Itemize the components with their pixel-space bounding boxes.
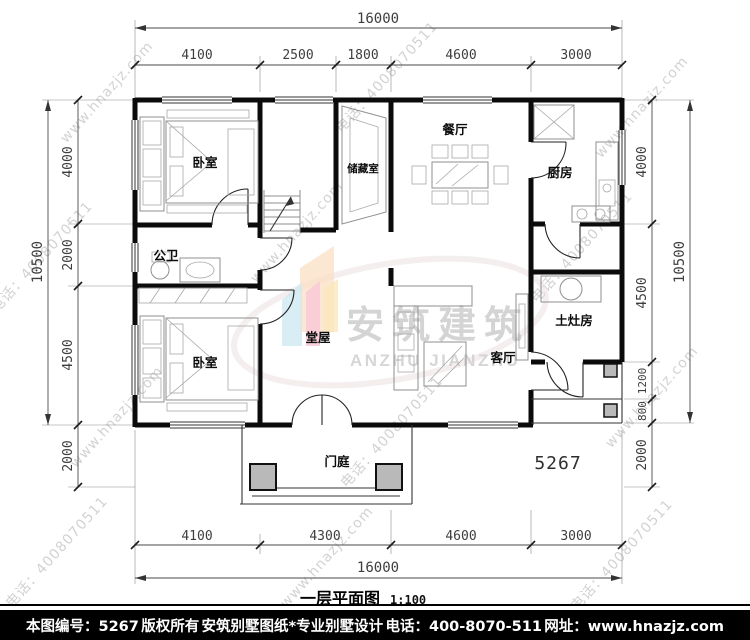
dim-left-seg: 2000 bbox=[61, 440, 76, 471]
dim-bottom-seg: 4600 bbox=[445, 529, 476, 544]
dim-bottom-seg: 4300 bbox=[309, 529, 340, 544]
porch-post bbox=[604, 404, 617, 417]
dim-bottom-seg: 3000 bbox=[560, 529, 591, 544]
footer-bar: 本图编号：5267 版权所有 安筑别墅图纸*专业别墅设计 电话：400-8070… bbox=[0, 610, 750, 640]
room-label-bedroom-bottom: 卧室 bbox=[192, 355, 218, 370]
footer-copyright: 版权所有 bbox=[141, 615, 199, 636]
furniture-dining bbox=[412, 145, 508, 204]
dim-right: 4000 4500 1200 800 2000 10500 bbox=[624, 96, 694, 491]
dim-top-seg: 4600 bbox=[445, 48, 476, 63]
footer-company: 安筑别墅图纸*专业别墅设计 bbox=[202, 615, 384, 636]
entry-door-leaf bbox=[292, 395, 322, 425]
entry-door-leaf bbox=[322, 395, 352, 425]
dim-left-total: 10500 bbox=[30, 241, 46, 283]
logo-house-yellow bbox=[324, 279, 338, 332]
porch-column bbox=[376, 464, 402, 490]
room-label-stove: 土灶房 bbox=[555, 313, 593, 328]
room-label-dining: 餐厅 bbox=[441, 122, 468, 137]
caption-title: 一层平面图 bbox=[300, 585, 380, 613]
room-label-kitchen: 厨房 bbox=[547, 165, 572, 180]
watermark-text: 电话：4008070511 bbox=[3, 493, 111, 604]
floorplan-page: { "caption": { "title": "一层平面图", "scale"… bbox=[0, 0, 750, 640]
watermark-text: www.hnazjz.com bbox=[67, 363, 166, 471]
dim-bottom-total: 16000 bbox=[357, 560, 399, 576]
dim-right-seg: 800 bbox=[636, 401, 649, 421]
wok-stove bbox=[560, 278, 582, 300]
dim-left-seg: 4500 bbox=[61, 339, 76, 370]
room-labels: 卧室 储藏室 餐厅 厨房 公卫 卧室 堂屋 客厅 土灶房 门庭 5267 bbox=[153, 122, 592, 474]
footer-divider bbox=[0, 604, 750, 606]
dim-top-seg: 3000 bbox=[560, 48, 591, 63]
dim-right-total: 10500 bbox=[672, 241, 688, 283]
furniture-kitchen bbox=[534, 105, 618, 222]
furniture-bedroom-bottom bbox=[139, 288, 258, 411]
dim-left-seg: 4000 bbox=[61, 146, 76, 177]
watermark-text: www.hnazjz.com bbox=[57, 38, 156, 146]
dim-right-seg: 4000 bbox=[635, 146, 650, 177]
floorplan-drawing: www.hnazjz.com 电话：4008070511 www.hnazjz.… bbox=[0, 0, 750, 604]
drawing-caption: 一层平面图 1:100 bbox=[300, 585, 500, 613]
plan-number: 5267 bbox=[534, 453, 581, 474]
watermark-text: 电话：4008070511 bbox=[333, 18, 441, 136]
room-label-bedroom-top: 卧室 bbox=[192, 155, 218, 170]
room-label-living: 客厅 bbox=[489, 350, 516, 365]
watermark-text: www.hnazjz.com bbox=[592, 53, 691, 161]
dim-top-seg: 4100 bbox=[181, 48, 212, 63]
room-label-porch: 门庭 bbox=[324, 454, 350, 469]
dim-right-seg: 1200 bbox=[636, 368, 649, 395]
dim-left: 10500 4000 2000 4500 2000 bbox=[30, 96, 135, 491]
logo-text-cn: 安筑建筑 bbox=[346, 303, 530, 347]
porch-column bbox=[250, 464, 276, 490]
dim-left-seg: 2000 bbox=[61, 239, 76, 270]
dim-top-seg: 2500 bbox=[282, 48, 313, 63]
dim-top-total: 16000 bbox=[357, 11, 399, 27]
dining-table bbox=[432, 162, 488, 188]
dim-top-seg: 1800 bbox=[347, 48, 378, 63]
dim-bottom-seg: 4100 bbox=[181, 529, 212, 544]
footer-plan-number: 本图编号：5267 bbox=[26, 615, 139, 636]
room-label-storage: 储藏室 bbox=[347, 162, 379, 175]
dim-right-seg: 4500 bbox=[635, 277, 650, 308]
footer-phone: 电话：400-8070-511 bbox=[385, 615, 541, 636]
footer-website: 网址：www.hnazjz.com bbox=[544, 615, 724, 636]
room-label-hall: 堂屋 bbox=[305, 330, 331, 345]
porch-post bbox=[604, 364, 617, 377]
room-label-bath: 公卫 bbox=[153, 248, 179, 263]
dim-right-seg: 2000 bbox=[635, 439, 650, 470]
